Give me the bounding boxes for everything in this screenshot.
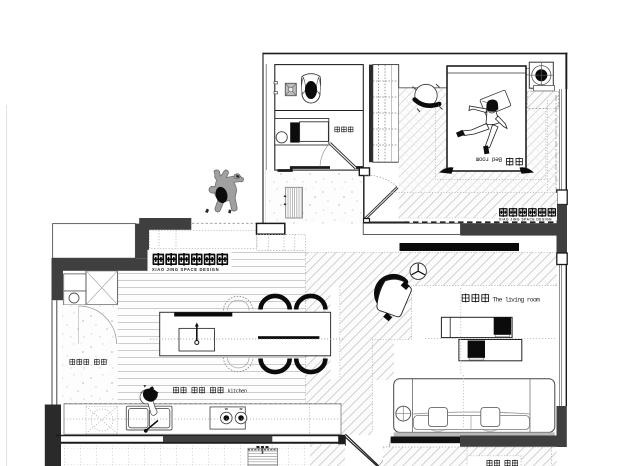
svg-text:kitchen: kitchen [228, 389, 247, 395]
svg-text:Bed room: Bed room [475, 156, 502, 163]
svg-text:XIAO JING SPACE DESIGN: XIAO JING SPACE DESIGN [499, 218, 552, 222]
svg-text:XIAO JING SPACE DESIGN: XIAO JING SPACE DESIGN [152, 267, 219, 272]
svg-text:The living room: The living room [493, 297, 541, 304]
